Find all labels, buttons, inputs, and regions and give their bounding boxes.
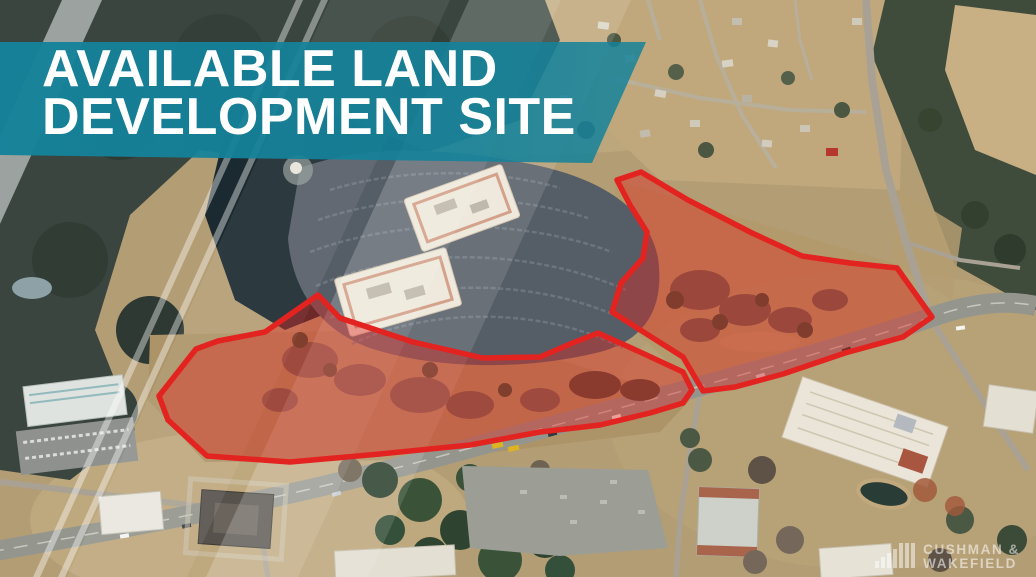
title-line-1: AVAILABLE LAND: [42, 45, 576, 93]
skyline-bars-icon: [875, 543, 915, 571]
watermark-line-1: CUSHMAN &: [923, 543, 1020, 557]
watermark-line-2: WAKEFIELD: [923, 557, 1020, 571]
big-parking-lot: [462, 466, 668, 556]
page-title: AVAILABLE LAND DEVELOPMENT SITE: [42, 45, 576, 141]
watermark-text: CUSHMAN & WAKEFIELD: [923, 543, 1020, 571]
cushman-wakefield-watermark: CUSHMAN & WAKEFIELD: [875, 543, 1020, 571]
available-land-flyer: AVAILABLE LAND DEVELOPMENT SITE CUSHMAN …: [0, 0, 1036, 577]
small-pond: [12, 277, 52, 299]
title-line-2: DEVELOPMENT SITE: [42, 93, 576, 141]
